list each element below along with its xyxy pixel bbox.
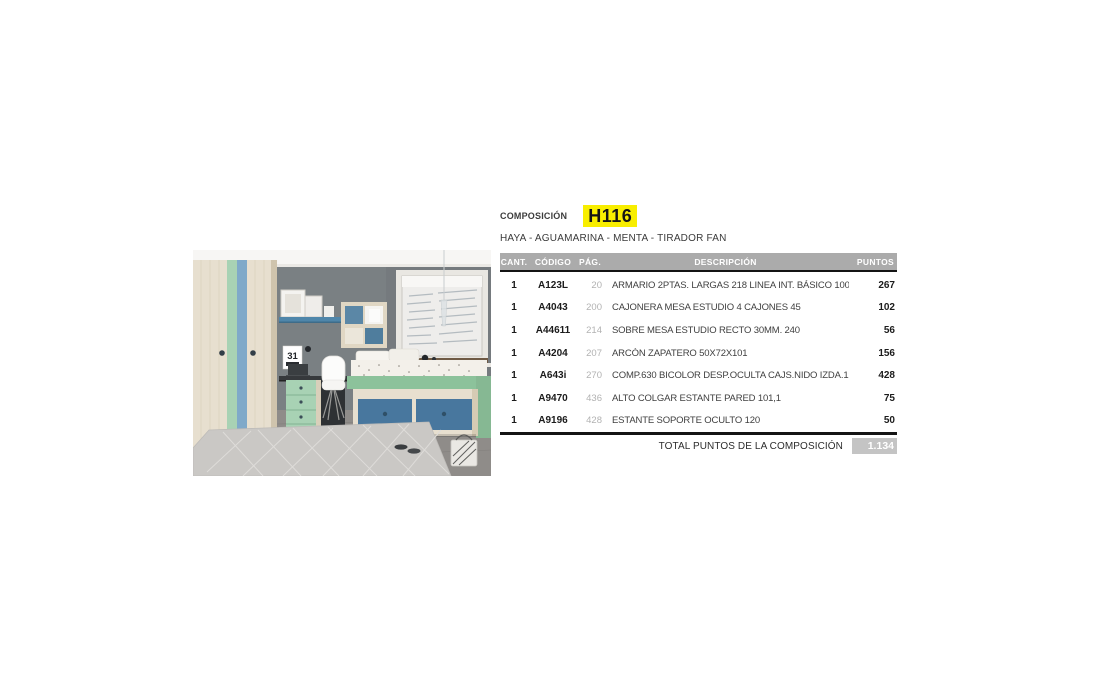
- cell-codigo: A9470: [528, 393, 578, 404]
- total-row: TOTAL PUNTOS DE LA COMPOSICIÓN 1.134: [500, 432, 897, 454]
- cell-descripcion: ARCÓN ZAPATERO 50X72X101: [602, 348, 849, 359]
- photo-cube-shelf: [341, 302, 387, 348]
- total-label: TOTAL PUNTOS DE LA COMPOSICIÓN: [659, 441, 843, 452]
- cell-descripcion: CAJONERA MESA ESTUDIO 4 CAJONES 45: [602, 302, 849, 313]
- cell-puntos: 156: [849, 348, 897, 359]
- cell-descripcion: ARMARIO 2PTAS. LARGAS 218 LINEA INT. BÁS…: [602, 280, 849, 291]
- table-row: 1 A44611 214 SOBRE MESA ESTUDIO RECTO 30…: [500, 319, 897, 342]
- cell-puntos: 75: [849, 393, 897, 404]
- table-body: 1 A123L 20 ARMARIO 2PTAS. LARGAS 218 LIN…: [500, 274, 897, 432]
- cell-pag: 207: [578, 348, 602, 359]
- photo-slipper: [408, 448, 421, 453]
- photo-wardrobe-knob: [250, 350, 256, 356]
- composition-photo: 31: [193, 250, 491, 476]
- photo-bag: [451, 435, 477, 466]
- photo-wardrobe-knob: [219, 350, 225, 356]
- composition-label: COMPOSICIÓN: [500, 211, 567, 221]
- table-row: 1 A9470 436 ALTO COLGAR ESTANTE PARED 10…: [500, 387, 897, 410]
- cell-pag: 214: [578, 325, 602, 336]
- table-row: 1 A4043 200 CAJONERA MESA ESTUDIO 4 CAJO…: [500, 297, 897, 320]
- header-codigo: CÓDIGO: [528, 257, 578, 267]
- cell-codigo: A9196: [528, 415, 578, 426]
- cell-descripcion: ESTANTE SOPORTE OCULTO 120: [602, 415, 849, 426]
- composition-finishes: HAYA - AGUAMARINA - MENTA - TIRADOR FAN: [500, 233, 897, 244]
- cell-pag: 200: [578, 302, 602, 313]
- cell-puntos: 428: [849, 370, 897, 381]
- cell-puntos: 56: [849, 325, 897, 336]
- table-header: CANT. CÓDIGO PÁG. DESCRIPCIÓN PUNTOS: [500, 253, 897, 272]
- cell-puntos: 267: [849, 280, 897, 291]
- cell-cant: 1: [500, 415, 528, 426]
- cell-codigo: A123L: [528, 280, 578, 291]
- cell-codigo: A4204: [528, 348, 578, 359]
- cell-cant: 1: [500, 370, 528, 381]
- cell-pag: 20: [578, 280, 602, 291]
- cell-descripcion: SOBRE MESA ESTUDIO RECTO 30MM. 240: [602, 325, 849, 336]
- cell-codigo: A643i: [528, 370, 578, 381]
- svg-text:31: 31: [287, 351, 298, 362]
- total-value: 1.134: [852, 438, 897, 454]
- cell-cant: 1: [500, 325, 528, 336]
- cell-puntos: 50: [849, 415, 897, 426]
- cell-pag: 270: [578, 370, 602, 381]
- composition-code: H116: [583, 205, 637, 227]
- bedroom-illustration: 31: [193, 250, 491, 476]
- table-row: 1 A9196 428 ESTANTE SOPORTE OCULTO 120 5…: [500, 410, 897, 433]
- photo-pillow: [389, 349, 419, 361]
- cell-pag: 428: [578, 415, 602, 426]
- cell-cant: 1: [500, 393, 528, 404]
- photo-slipper: [395, 444, 408, 449]
- cell-pag: 436: [578, 393, 602, 404]
- cell-descripcion: COMP.630 BICOLOR DESP.OCULTA CAJS.NIDO I…: [602, 370, 849, 381]
- photo-aqua-stripe: [237, 260, 247, 456]
- title-row: COMPOSICIÓN H116: [500, 205, 897, 227]
- cell-descripcion: ALTO COLGAR ESTANTE PARED 101,1: [602, 393, 849, 404]
- photo-bed-rail: [347, 376, 491, 389]
- photo-wardrobe: [193, 260, 277, 457]
- header-cant: CANT.: [500, 257, 528, 267]
- cell-cant: 1: [500, 280, 528, 291]
- photo-laptop: [288, 364, 308, 375]
- table-row: 1 A643i 270 COMP.630 BICOLOR DESP.OCULTA…: [500, 364, 897, 387]
- cell-codigo: A44611: [528, 325, 578, 336]
- cell-codigo: A4043: [528, 302, 578, 313]
- photo-roller-blind: [402, 276, 482, 287]
- cell-cant: 1: [500, 302, 528, 313]
- header-pag: PÁG.: [578, 257, 602, 267]
- table-row: 1 A123L 20 ARMARIO 2PTAS. LARGAS 218 LIN…: [500, 274, 897, 297]
- table-row: 1 A4204 207 ARCÓN ZAPATERO 50X72X101 156: [500, 342, 897, 365]
- cell-puntos: 102: [849, 302, 897, 313]
- cell-cant: 1: [500, 348, 528, 359]
- composition-panel: COMPOSICIÓN H116 HAYA - AGUAMARINA - MEN…: [500, 205, 897, 454]
- catalog-page: 31: [0, 0, 1100, 700]
- photo-mint-stripe: [227, 260, 237, 456]
- header-descripcion: DESCRIPCIÓN: [602, 257, 849, 267]
- photo-clock: [305, 346, 311, 352]
- header-puntos: PUNTOS: [849, 257, 897, 267]
